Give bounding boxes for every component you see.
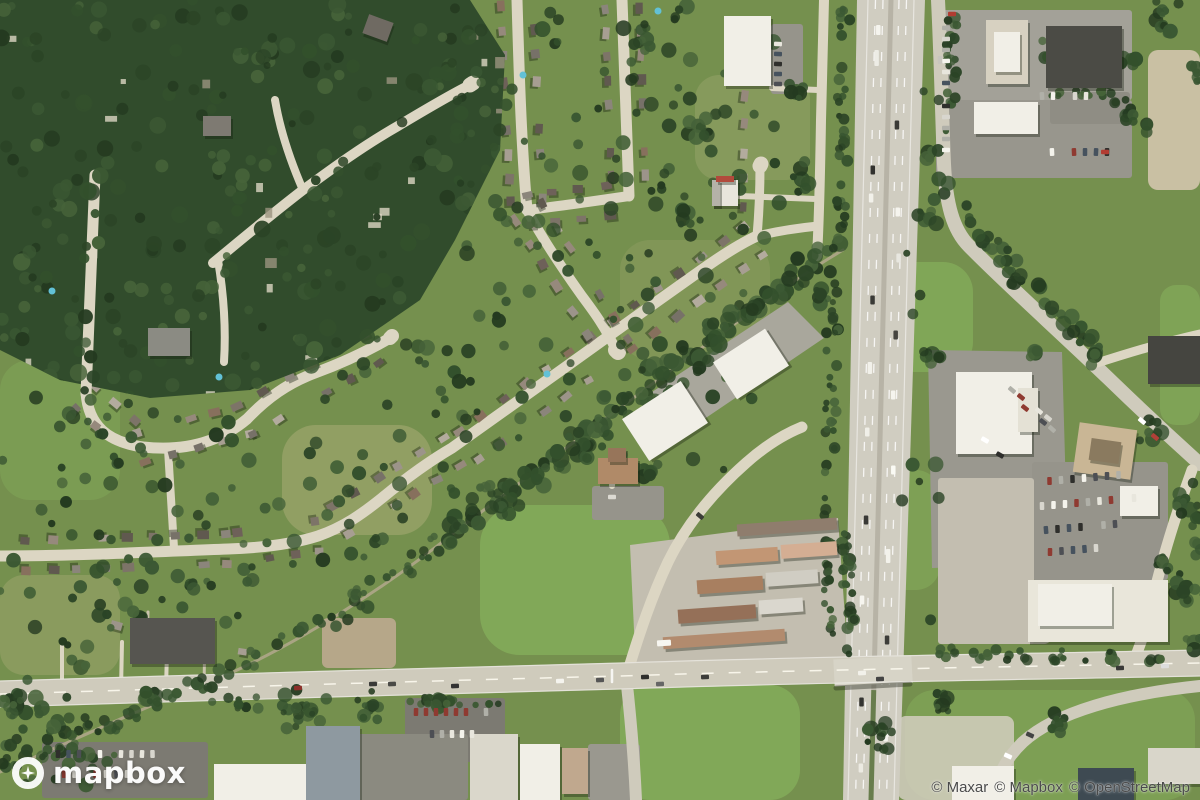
map-canvas[interactable]: mapbox © Maxar © Mapbox © OpenStreetMap — [0, 0, 1200, 800]
mapbox-icon — [10, 755, 46, 791]
attribution-openstreetmap[interactable]: © OpenStreetMap — [1069, 779, 1190, 796]
mapbox-logo[interactable]: mapbox — [10, 755, 186, 791]
attribution-mapbox[interactable]: © Mapbox — [994, 779, 1063, 796]
mapbox-logo-text: mapbox — [53, 756, 186, 790]
attribution-maxar[interactable]: © Maxar — [931, 779, 988, 796]
satellite-imagery — [0, 0, 1200, 800]
map-attribution: © Maxar © Mapbox © OpenStreetMap — [931, 779, 1190, 796]
